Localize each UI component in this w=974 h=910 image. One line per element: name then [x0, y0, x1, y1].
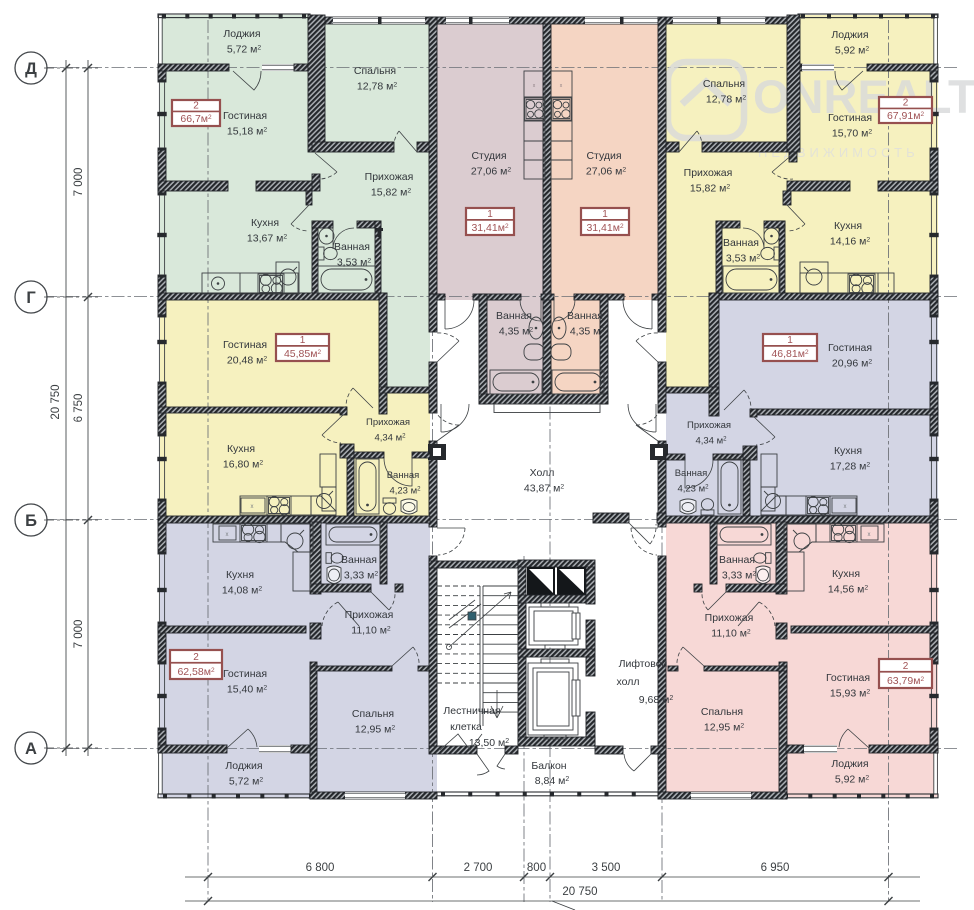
svg-text:14,08 м2: 14,08 м2	[222, 585, 262, 597]
svg-text:31,41м2: 31,41м2	[471, 222, 509, 234]
svg-text:15,40 м2: 15,40 м2	[227, 684, 267, 696]
svg-text:Кухня: Кухня	[226, 569, 254, 581]
svg-text:Кухня: Кухня	[251, 217, 279, 229]
svg-text:Лоджия: Лоджия	[223, 28, 260, 40]
svg-text:x: x	[844, 504, 847, 510]
svg-text:Ванная: Ванная	[719, 554, 755, 566]
svg-text:Лифтовой: Лифтовой	[619, 658, 668, 670]
svg-text:Д: Д	[25, 60, 37, 78]
svg-text:15,82 м2: 15,82 м2	[371, 187, 411, 199]
svg-text:20 750: 20 750	[50, 384, 62, 419]
svg-text:Ванная: Ванная	[334, 241, 370, 253]
svg-text:Студия: Студия	[471, 150, 506, 162]
svg-text:Спальня: Спальня	[354, 65, 396, 77]
svg-text:Гостиная: Гостиная	[223, 668, 267, 680]
svg-text:3,53 м2: 3,53 м2	[726, 253, 761, 265]
svg-text:Спальня: Спальня	[352, 708, 394, 720]
svg-text:Прихожая: Прихожая	[705, 612, 754, 624]
svg-text:5,92 м2: 5,92 м2	[835, 774, 870, 786]
svg-text:Г: Г	[26, 289, 36, 307]
svg-text:Прихожая: Прихожая	[366, 417, 410, 428]
svg-text:45,85м2: 45,85м2	[284, 348, 322, 360]
svg-text:4,35 м2: 4,35 м2	[570, 326, 605, 338]
svg-text:15,18 м2: 15,18 м2	[227, 126, 267, 138]
svg-text:4,35 м2: 4,35 м2	[499, 326, 534, 338]
svg-text:Прихожая: Прихожая	[687, 420, 731, 431]
svg-text:Лестничная: Лестничная	[443, 705, 500, 717]
svg-text:63,79м2: 63,79м2	[887, 675, 925, 687]
svg-text:3,33 м2: 3,33 м2	[344, 570, 379, 582]
svg-text:2: 2	[903, 661, 909, 672]
svg-text:13,67 м2: 13,67 м2	[247, 233, 287, 245]
svg-text:1: 1	[787, 335, 793, 346]
svg-text:62,58м2: 62,58м2	[177, 666, 215, 678]
svg-text:Гостиная: Гостиная	[828, 112, 872, 124]
svg-text:20,48 м2: 20,48 м2	[227, 355, 267, 367]
svg-text:7 000: 7 000	[73, 168, 85, 197]
svg-text:12,95 м2: 12,95 м2	[355, 724, 395, 736]
svg-text:холл: холл	[617, 676, 640, 688]
svg-text:Холл: Холл	[530, 467, 555, 479]
svg-text:Ванная: Ванная	[675, 468, 708, 479]
svg-text:Ванная: Ванная	[723, 237, 759, 249]
svg-text:клетка: клетка	[450, 721, 482, 733]
svg-text:15,82 м2: 15,82 м2	[690, 183, 730, 195]
svg-text:14,56 м2: 14,56 м2	[828, 584, 868, 596]
svg-text:Прихожая: Прихожая	[365, 171, 414, 183]
svg-text:2: 2	[193, 652, 199, 663]
svg-text:x: x	[226, 532, 229, 538]
svg-text:16,80 м2: 16,80 м2	[223, 459, 263, 471]
svg-text:2: 2	[903, 97, 909, 108]
svg-text:x: x	[868, 532, 871, 538]
svg-text:43,87 м2: 43,87 м2	[524, 483, 564, 495]
svg-text:Прихожая: Прихожая	[684, 167, 733, 179]
svg-text:5,72 м2: 5,72 м2	[229, 776, 264, 788]
svg-text:12,95 м2: 12,95 м2	[704, 722, 744, 734]
svg-text:Студия: Студия	[586, 150, 621, 162]
svg-text:x: x	[251, 504, 254, 510]
svg-text:3 500: 3 500	[592, 862, 621, 874]
svg-text:4,34 м2: 4,34 м2	[374, 433, 406, 444]
svg-text:Спальня: Спальня	[703, 78, 745, 90]
svg-text:Балкон: Балкон	[531, 760, 566, 772]
svg-text:6 750: 6 750	[73, 394, 85, 423]
svg-text:3,33 м2: 3,33 м2	[722, 570, 757, 582]
svg-text:Кухня: Кухня	[832, 568, 860, 580]
svg-text:2: 2	[193, 100, 199, 111]
svg-text:1: 1	[487, 209, 493, 220]
svg-text:2 700: 2 700	[464, 862, 493, 874]
svg-text:46,81м2: 46,81м2	[771, 348, 809, 360]
svg-text:7 000: 7 000	[73, 620, 85, 649]
svg-text:12,78 м2: 12,78 м2	[357, 81, 397, 93]
svg-text:3,53 м2: 3,53 м2	[337, 257, 372, 269]
svg-text:Спальня: Спальня	[701, 706, 743, 718]
svg-text:Ванная: Ванная	[341, 554, 377, 566]
svg-text:20,96 м2: 20,96 м2	[832, 358, 872, 370]
svg-text:1: 1	[300, 335, 306, 346]
svg-text:17,28 м2: 17,28 м2	[830, 461, 870, 473]
svg-text:Ванная: Ванная	[567, 310, 603, 322]
svg-text:11,10 м2: 11,10 м2	[711, 628, 751, 640]
svg-text:Кухня: Кухня	[227, 443, 255, 455]
svg-text:14,16 м2: 14,16 м2	[830, 236, 870, 248]
svg-text:5,72 м2: 5,72 м2	[227, 44, 262, 56]
svg-text:12,78 м2: 12,78 м2	[706, 94, 746, 106]
svg-text:Гостиная: Гостиная	[828, 342, 872, 354]
svg-text:15,93 м2: 15,93 м2	[830, 688, 870, 700]
svg-text:27,06 м2: 27,06 м2	[471, 166, 511, 178]
svg-text:Лоджия: Лоджия	[225, 760, 262, 772]
svg-text:5,92 м2: 5,92 м2	[835, 45, 870, 57]
svg-text:800: 800	[527, 862, 546, 874]
svg-text:Б: Б	[25, 512, 37, 530]
svg-text:1: 1	[602, 209, 608, 220]
svg-text:Гостиная: Гостиная	[826, 672, 870, 684]
svg-text:20 750: 20 750	[562, 886, 597, 898]
svg-text:Кухня: Кухня	[834, 445, 862, 457]
svg-text:Лоджия: Лоджия	[831, 758, 868, 770]
svg-text:15,70 м2: 15,70 м2	[832, 128, 872, 140]
svg-text:4,23 м2: 4,23 м2	[389, 486, 421, 497]
svg-text:6 800: 6 800	[306, 862, 335, 874]
svg-text:4,23 м2: 4,23 м2	[677, 484, 709, 495]
svg-text:31,41м2: 31,41м2	[586, 222, 624, 234]
svg-text:Прихожая: Прихожая	[345, 609, 394, 621]
svg-text:9,68 м2: 9,68 м2	[639, 694, 674, 706]
svg-text:Гостиная: Гостиная	[223, 110, 267, 122]
svg-text:6 950: 6 950	[761, 862, 790, 874]
svg-text:Ванная: Ванная	[496, 310, 532, 322]
svg-text:11,10 м2: 11,10 м2	[351, 625, 391, 637]
svg-text:8,84 м2: 8,84 м2	[535, 775, 570, 787]
svg-text:Гостиная: Гостиная	[223, 339, 267, 351]
svg-text:А: А	[25, 740, 37, 758]
svg-text:67,91м2: 67,91м2	[887, 110, 925, 122]
svg-text:66,7м2: 66,7м2	[180, 113, 212, 125]
svg-text:27,06 м2: 27,06 м2	[586, 166, 626, 178]
svg-text:Лоджия: Лоджия	[831, 29, 868, 41]
svg-text:4,34 м2: 4,34 м2	[695, 436, 727, 447]
svg-text:Ванная: Ванная	[387, 470, 420, 481]
svg-text:Кухня: Кухня	[834, 220, 862, 232]
